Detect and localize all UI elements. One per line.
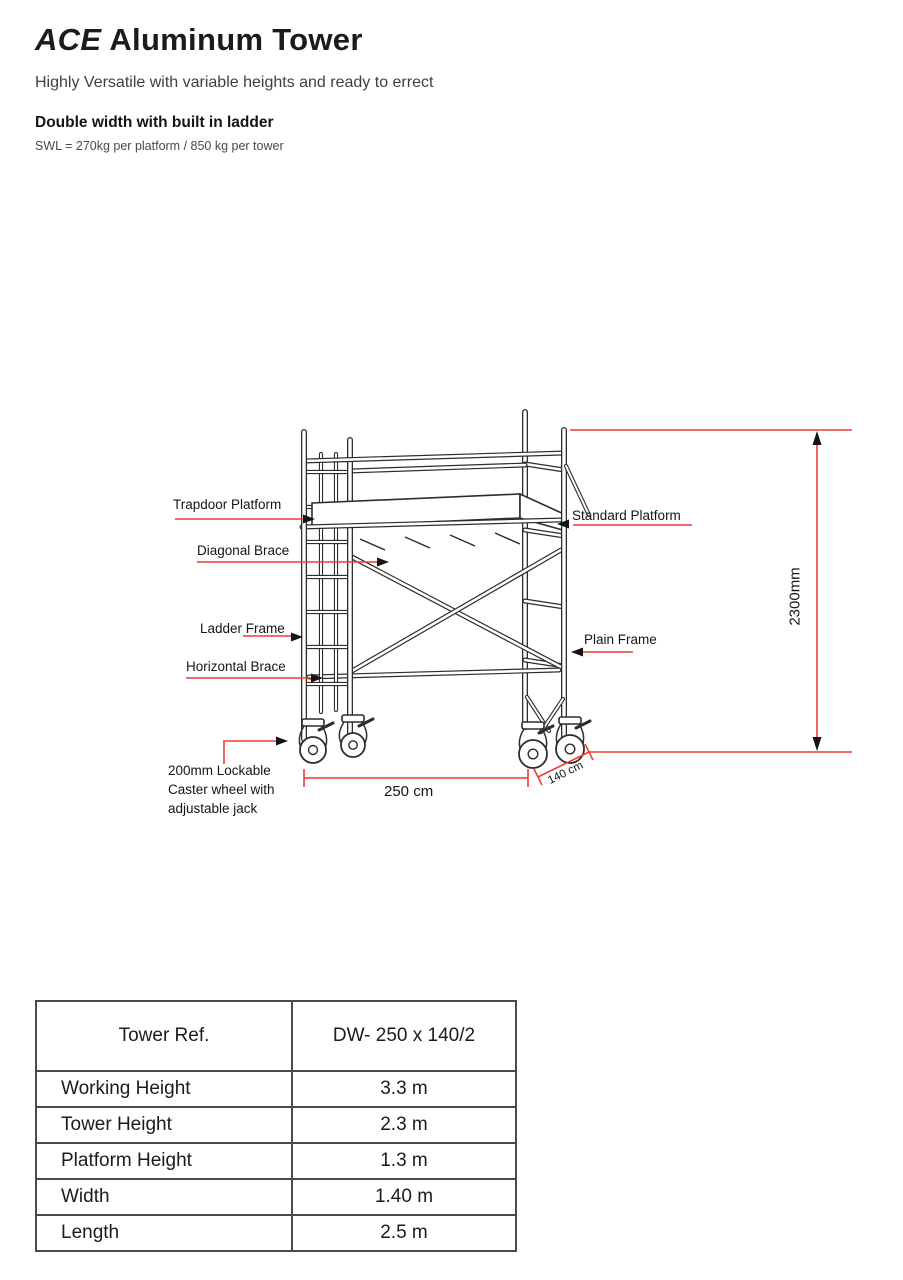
label-trapdoor-platform: Trapdoor Platform xyxy=(173,497,281,512)
table-row: Platform Height 1.3 m xyxy=(36,1143,516,1179)
tower-diagram: Trapdoor Platform Diagonal Brace Ladder … xyxy=(0,400,903,830)
row-value: 1.3 m xyxy=(292,1143,516,1179)
spec-table-header-value: DW- 250 x 140/2 xyxy=(292,1001,516,1071)
page-title-rest: Aluminum Tower xyxy=(109,22,362,57)
label-caster: 200mm Lockable Caster wheel with adjusta… xyxy=(168,761,275,818)
dimension-lines xyxy=(304,430,852,787)
table-row: Length 2.5 m xyxy=(36,1215,516,1251)
page-title: ACEAluminum Tower xyxy=(35,22,363,58)
caster-wheel xyxy=(299,719,333,763)
row-value: 3.3 m xyxy=(292,1071,516,1107)
tower-diagram-drawing xyxy=(0,400,903,830)
spec-table-header-label: Tower Ref. xyxy=(36,1001,292,1071)
caster-wheel xyxy=(556,717,590,763)
row-label: Platform Height xyxy=(36,1143,292,1179)
caster-wheel xyxy=(519,722,553,768)
page-subtitle: Highly Versatile with variable heights a… xyxy=(35,74,433,92)
caster-wheel xyxy=(339,715,373,757)
row-label: Tower Height xyxy=(36,1107,292,1143)
row-value: 2.5 m xyxy=(292,1215,516,1251)
spec-table-header-row: Tower Ref. DW- 250 x 140/2 xyxy=(36,1001,516,1071)
table-row: Width 1.40 m xyxy=(36,1179,516,1215)
label-diagonal-brace: Diagonal Brace xyxy=(197,543,289,558)
label-standard-platform: Standard Platform xyxy=(572,508,681,523)
label-plain-frame: Plain Frame xyxy=(584,632,657,647)
product-variant-heading: Double width with built in ladder xyxy=(35,114,274,132)
page-title-brand: ACE xyxy=(35,22,101,57)
row-label: Working Height xyxy=(36,1071,292,1107)
table-row: Tower Height 2.3 m xyxy=(36,1107,516,1143)
row-label: Width xyxy=(36,1179,292,1215)
row-value: 2.3 m xyxy=(292,1107,516,1143)
label-horizontal-brace: Horizontal Brace xyxy=(186,659,286,674)
spec-sheet-page: ACEAluminum Tower Highly Versatile with … xyxy=(0,0,903,1280)
table-row: Working Height 3.3 m xyxy=(36,1071,516,1107)
dimension-tower-height: 2300mm xyxy=(787,567,804,625)
label-ladder-frame: Ladder Frame xyxy=(200,621,285,636)
row-value: 1.40 m xyxy=(292,1179,516,1215)
spec-table: Tower Ref. DW- 250 x 140/2 Working Heigh… xyxy=(35,1000,517,1252)
safe-working-load-note: SWL = 270kg per platform / 850 kg per to… xyxy=(35,139,284,153)
dimension-length: 250 cm xyxy=(384,783,433,800)
scaffold-drawing xyxy=(299,412,590,768)
row-label: Length xyxy=(36,1215,292,1251)
